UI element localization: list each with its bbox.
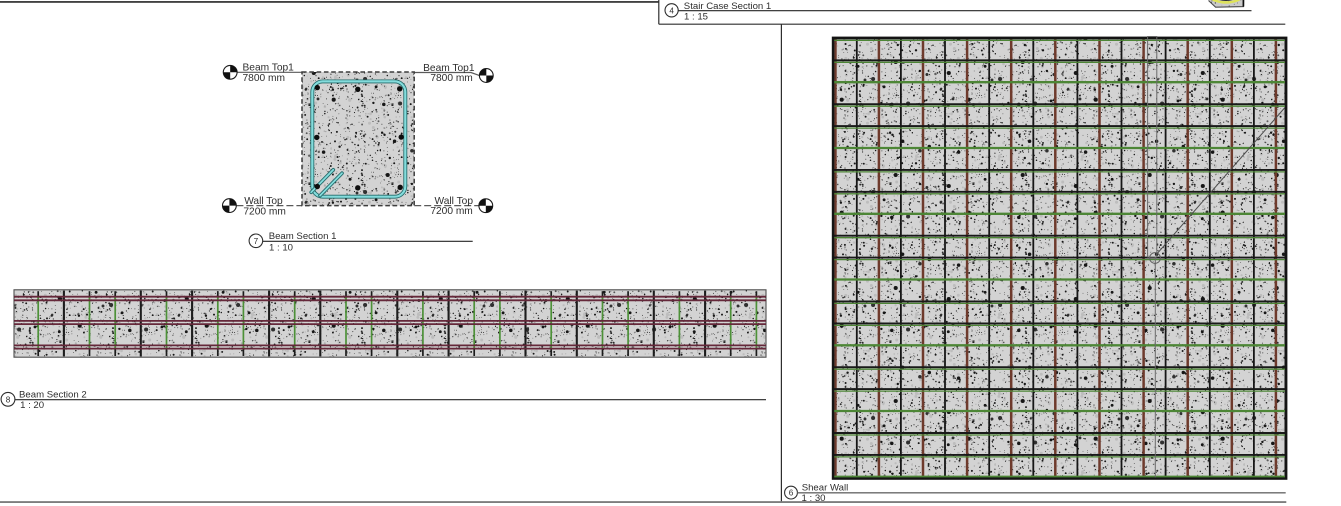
svg-text:7200 mm: 7200 mm [243, 207, 285, 218]
svg-text:8: 8 [6, 395, 11, 404]
svg-text:7800 mm: 7800 mm [243, 73, 285, 84]
svg-text:Shear Wall: Shear Wall [802, 482, 849, 493]
svg-text:1 : 15: 1 : 15 [684, 12, 708, 23]
svg-text:6: 6 [789, 489, 794, 498]
svg-text:Wall Top: Wall Top [244, 196, 283, 207]
svg-text:7: 7 [254, 237, 259, 246]
svg-text:1 : 30: 1 : 30 [802, 493, 826, 504]
svg-text:1 : 10: 1 : 10 [269, 243, 293, 254]
svg-text:4: 4 [669, 6, 674, 15]
svg-text:7200 mm: 7200 mm [430, 206, 472, 217]
svg-text:7800 mm: 7800 mm [430, 73, 472, 84]
svg-text:Beam Section 2: Beam Section 2 [19, 389, 87, 400]
svg-text:Beam Section 1: Beam Section 1 [269, 231, 337, 242]
svg-text:1 : 20: 1 : 20 [20, 400, 44, 411]
